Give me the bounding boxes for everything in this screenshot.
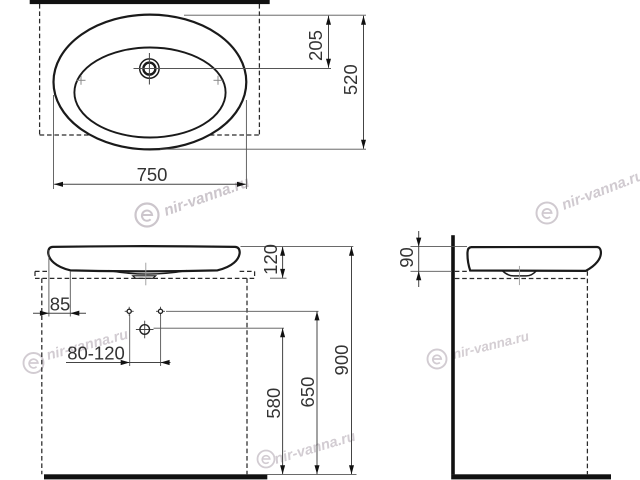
svg-text:80-120: 80-120 — [67, 342, 125, 363]
svg-text:650: 650 — [297, 377, 318, 408]
svg-text:90: 90 — [396, 247, 417, 268]
svg-text:85: 85 — [50, 293, 71, 314]
svg-text:520: 520 — [340, 64, 361, 95]
svg-text:120: 120 — [260, 244, 281, 275]
svg-text:580: 580 — [263, 388, 284, 419]
svg-text:205: 205 — [305, 30, 326, 61]
svg-text:750: 750 — [137, 164, 168, 185]
svg-text:900: 900 — [331, 345, 352, 376]
